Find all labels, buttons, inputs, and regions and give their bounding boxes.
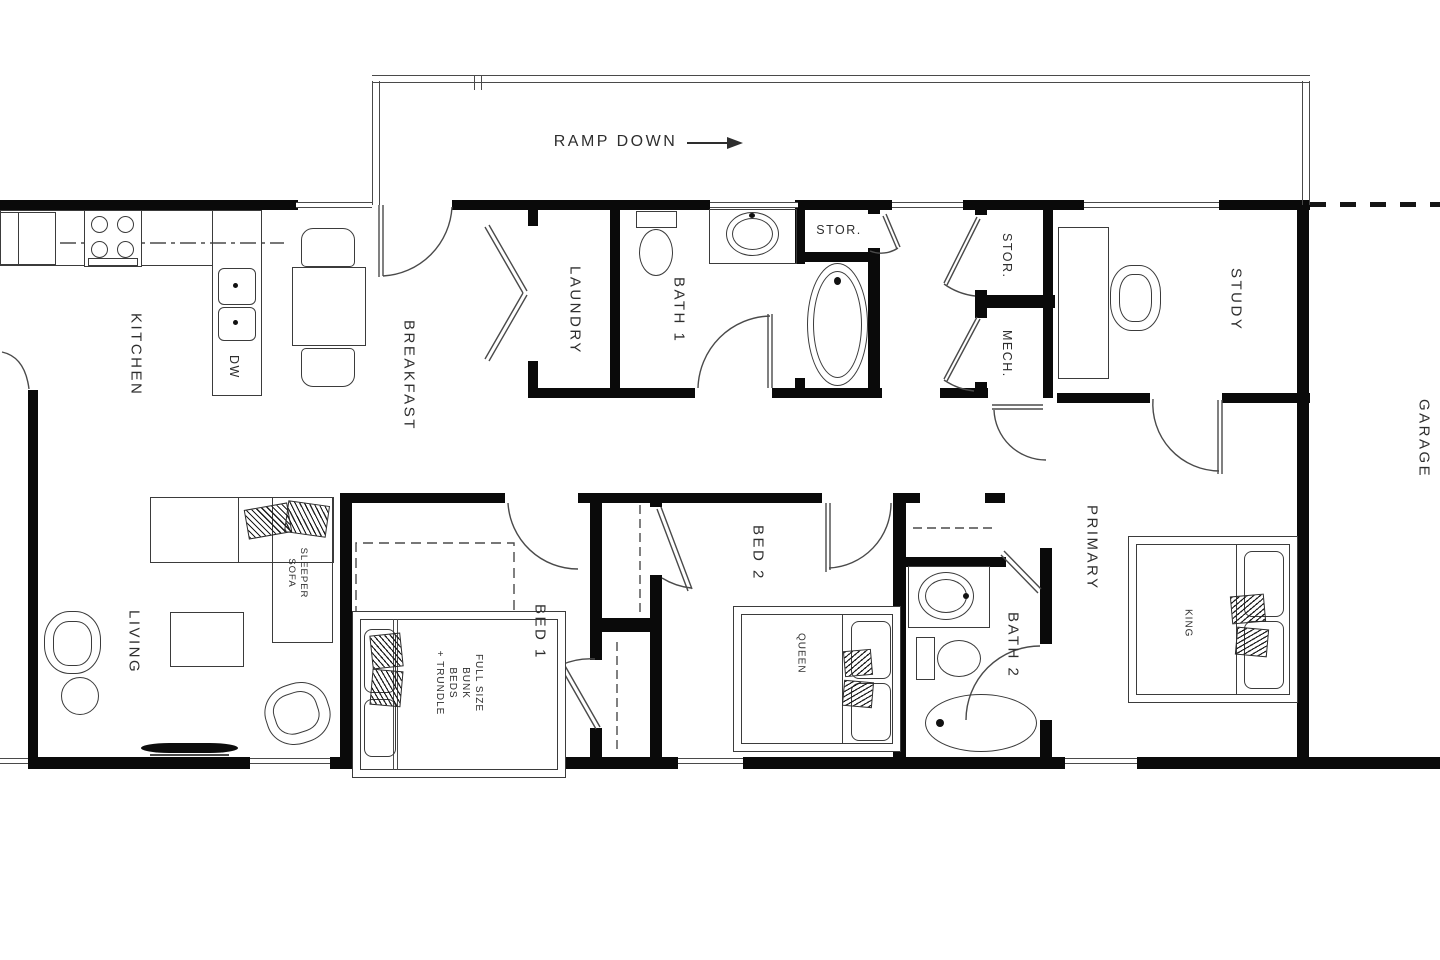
- coffee-table: [170, 612, 244, 667]
- sofa-cushion-line: [238, 498, 239, 562]
- room-label-bed2: BED 2: [746, 517, 770, 589]
- primary-entry-door: [992, 405, 1046, 460]
- chair: [301, 348, 355, 387]
- bathtub-inner: [813, 271, 862, 378]
- breakfast-table: [292, 267, 366, 346]
- burner-icon: [117, 216, 134, 233]
- fixture-label-king: KING: [1179, 597, 1197, 649]
- burner-icon: [117, 241, 134, 258]
- floor-plan: RAMP DOWN KITCHEN BREAKFAST LIVING LAUND…: [0, 0, 1440, 960]
- room-label-stor-closet: STOR.: [996, 221, 1018, 291]
- shower-glass-door: [1001, 551, 1041, 593]
- bed1-pillow-hatch: [369, 669, 403, 708]
- bed1-closet-door: [560, 659, 600, 729]
- bed2-door: [826, 503, 891, 572]
- fixture-label-sleeper-sofa: SLEEPER SOFA: [284, 547, 310, 599]
- armchair-cushion: [53, 621, 92, 666]
- king-pillow-hatch: [1235, 627, 1269, 658]
- room-label-laundry: LAUNDRY: [563, 240, 587, 380]
- room-label-mech: MECH.: [996, 317, 1018, 391]
- faucet-dot: [963, 593, 969, 599]
- room-label-study: STUDY: [1224, 256, 1248, 344]
- bed1-pillow-hatch: [369, 632, 403, 669]
- fixture-label-queen: QUEEN: [791, 613, 811, 693]
- doors-and-dashes-layer: [0, 0, 1440, 960]
- bath1-door: [698, 314, 772, 388]
- toilet-tank: [916, 637, 935, 680]
- entry-door-arc: [2, 352, 29, 389]
- room-label-garage: GARAGE: [1412, 396, 1436, 482]
- room-label-breakfast: BREAKFAST: [397, 312, 421, 438]
- sofa-pillow: [284, 500, 330, 538]
- burner-icon: [91, 216, 108, 233]
- toilet-bowl: [937, 640, 981, 677]
- room-label-kitchen: KITCHEN: [124, 309, 148, 401]
- ramp-label: RAMP DOWN: [543, 131, 688, 153]
- laundry-bifold-doors: [485, 225, 527, 361]
- study-desk: [1058, 227, 1109, 379]
- tub-storage-door: [870, 214, 900, 253]
- side-table: [61, 677, 99, 715]
- bed2-pillow-hatch: [843, 649, 873, 677]
- tub-drain-dot: [936, 719, 944, 727]
- room-label-bed1: BED 1: [528, 596, 552, 668]
- stove-base: [88, 258, 138, 266]
- desk-chair-back: [1119, 274, 1152, 322]
- burner-icon: [91, 241, 108, 258]
- room-label-primary: PRIMARY: [1080, 497, 1104, 599]
- bed1-door-arc: [508, 503, 578, 569]
- mech-closet-door: [944, 317, 980, 391]
- sink-drain-dot: [233, 283, 238, 288]
- fixture-label-bunk-beds: FULL SIZE BUNK BEDS + TRUNDLE: [437, 650, 481, 716]
- fixture-label-dishwasher: DW: [224, 343, 244, 391]
- refrigerator-divider: [18, 213, 19, 264]
- tv-console-line: [150, 754, 229, 756]
- kitchen-back-door: [379, 205, 452, 277]
- bath2-sink-inner: [925, 579, 967, 613]
- room-label-bath2: BATH 2: [1001, 597, 1025, 693]
- king-pillow-hatch: [1230, 594, 1266, 625]
- storage-closet-door: [944, 217, 980, 296]
- bed2-pillow-hatch: [842, 680, 874, 709]
- refrigerator: [0, 212, 56, 265]
- pillow: [364, 699, 396, 757]
- bed2-closet-door: [657, 507, 692, 591]
- armchair-cushion: [269, 686, 324, 739]
- chair: [301, 228, 355, 267]
- room-label-bath1: BATH 1: [667, 263, 691, 358]
- tv-console: [141, 743, 238, 753]
- tub-drain-dot: [834, 277, 841, 285]
- toilet-tank: [636, 211, 677, 228]
- bath1-sink-inner: [732, 218, 773, 250]
- sink-drain-dot: [233, 320, 238, 325]
- ramp-arrow-icon: [687, 137, 743, 149]
- room-label-stor-tub: STOR.: [806, 221, 872, 239]
- room-label-living: LIVING: [122, 605, 146, 679]
- faucet-dot: [749, 213, 755, 218]
- study-door: [1153, 399, 1222, 474]
